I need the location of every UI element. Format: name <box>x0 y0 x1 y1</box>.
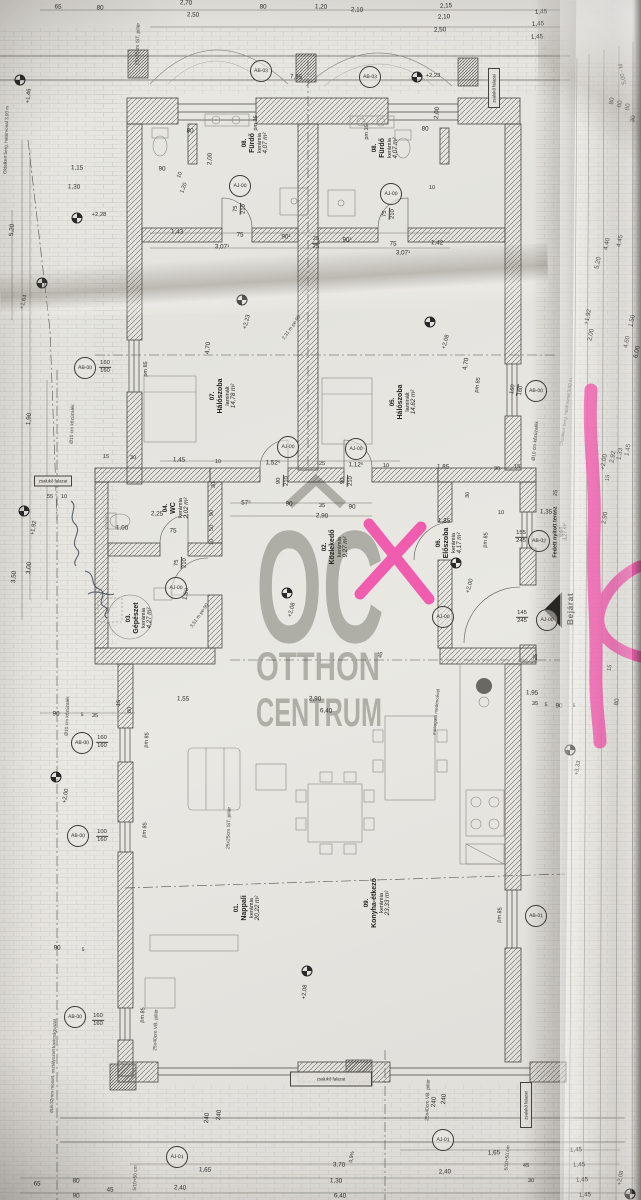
dimension-label: 80 <box>186 127 193 134</box>
dimension-label: 10 <box>383 463 389 469</box>
size-stack: 75210 <box>233 203 248 215</box>
opening-tag: AB-00 <box>64 1006 87 1029</box>
size-stack: 160160 <box>99 360 111 374</box>
level-value: +2,00 <box>62 788 70 803</box>
level-mark-icon <box>72 213 83 224</box>
room-r-num: 08. <box>372 138 379 159</box>
note-label: 5/10+50 cm <box>504 1145 511 1171</box>
dimension-label: 3,70 <box>333 1161 346 1168</box>
dimension-label: 30 <box>494 466 500 472</box>
dimension-label: 10 <box>176 171 184 179</box>
dimension-label: 75 <box>169 527 176 534</box>
dimension-label: 2,00 <box>433 107 441 120</box>
room-r-area: 4,27 m² <box>147 602 154 633</box>
size-stack: 75210 <box>174 557 189 569</box>
dimension-label: pm 85 <box>496 907 503 923</box>
dimension-label: 0,5% <box>348 1151 356 1163</box>
level-value: +2,08 <box>287 602 297 618</box>
room-r-area: 2,02 m² <box>184 498 191 519</box>
room-r-num: 07. <box>210 378 217 413</box>
dimension-label: 15 <box>116 700 123 707</box>
level-value: +1,92 <box>30 520 38 535</box>
note-label: 2,31 m pe-90 <box>282 315 302 341</box>
room-r-num: 08. <box>242 133 249 154</box>
dimension-label: 90 <box>72 1192 79 1199</box>
room-r-num: 02. <box>322 529 329 564</box>
size-stack: 160160 <box>96 735 108 749</box>
dimension-label: 10 <box>215 459 221 465</box>
dimension-label: 2,50 <box>187 11 200 18</box>
note-label: Oldalkert berg. határvonal 3,00 m <box>2 106 9 174</box>
dimension-label: 1,00 <box>116 524 129 531</box>
dimension-label: 90 <box>158 165 165 172</box>
level-value: +1,46 <box>25 88 32 103</box>
level-value: +2,08 <box>301 984 308 999</box>
level-mark-icon <box>451 558 462 569</box>
paper-crease-horizontal <box>0 244 549 318</box>
dimension-label: 90 <box>348 503 355 510</box>
dimension-label: 2,40 <box>439 1168 452 1175</box>
dimension-label: 90 <box>53 944 60 951</box>
room-r-area: 14,78 m² <box>231 378 238 413</box>
room-r-name: Előszoba <box>443 528 451 559</box>
dimension-label: 4,70 <box>461 357 470 370</box>
paper-fold-corner <box>538 0 641 200</box>
dimension-label: 90¹ <box>281 233 290 240</box>
floorplan-photo: OC OTTHON CENTRUM 2,7065802,50801,202,10… <box>0 0 641 1200</box>
room-r-num: 03. <box>126 602 133 633</box>
dimension-label: 5,20 <box>8 224 16 237</box>
note-label: 5/10+50 cm <box>133 1165 139 1190</box>
dimension-label: 45 <box>378 651 385 658</box>
dimension-label: 240 <box>215 1109 223 1120</box>
dimension-label: 1,90 <box>25 413 33 426</box>
dimension-label: 1,65 <box>199 1166 212 1173</box>
dimension-label: 2,40 <box>174 1184 187 1191</box>
size-stack: 90210 <box>340 475 355 487</box>
room-r-num: 01. <box>234 895 241 920</box>
opening-tag: AB-03 <box>359 66 382 89</box>
dimension-label: 2,50 <box>434 26 447 34</box>
dimension-label: 6,40 <box>334 1192 347 1199</box>
room-r-name: Fürdő <box>249 133 257 154</box>
note-label: 3,51 m pe-90 <box>190 603 210 629</box>
level-mark-icon <box>425 317 436 328</box>
dimension-label: 1,12⁵ <box>348 461 363 469</box>
room-r-name: Közlekedő <box>329 529 337 564</box>
note-label: d16-32mm mosott, osztályozott kavicságya… <box>49 1019 57 1113</box>
opening-tag: AB-00 <box>71 732 94 755</box>
dimension-label: 15 <box>514 464 520 470</box>
dimension-label: 3,50 <box>10 571 18 584</box>
room-label: 08.Fürdőkerámia4,07 m² <box>372 138 400 159</box>
dimension-label: 25 <box>319 461 325 467</box>
room-label: 05.Hálószobalaminált14,62 m² <box>390 384 418 419</box>
dimension-label: 10 <box>429 185 435 191</box>
note-label: 25x25cm IST. pillér <box>134 23 141 65</box>
room-r-area: 23,33 m² <box>385 878 392 928</box>
opening-tag: AB-00 <box>67 825 90 848</box>
opening-tag: AJ-00 <box>277 436 300 459</box>
room-r-num: 06. <box>436 528 443 559</box>
dimension-label: 90 <box>285 500 292 507</box>
dimension-label: 35 <box>319 503 325 509</box>
size-stack: 90210 <box>276 475 291 487</box>
dimension-label: pm 85 <box>143 732 150 748</box>
room-label: 03.Gépészetkerámia4,27 m² <box>126 602 154 633</box>
dimension-label: 7,85 <box>290 73 303 80</box>
level-mark-icon <box>412 72 423 83</box>
dimension-label: 80 <box>127 707 134 714</box>
opening-tag: AJ-00 <box>380 183 403 206</box>
dimension-label: 55 <box>47 494 53 500</box>
dimension-label: 1,30 <box>68 183 81 190</box>
dimension-label: 10 <box>209 539 216 546</box>
opening-tag: AB-03 <box>250 60 273 83</box>
level-value: +2,23 <box>242 314 252 330</box>
dimension-label: 90¹ <box>342 236 351 243</box>
dimension-label: 4,70 <box>204 342 212 355</box>
dimension-label: 10 <box>498 510 504 516</box>
level-mark-icon <box>282 588 293 599</box>
note-label: Ø10 cm kőzúzalék <box>70 404 76 444</box>
dimension-label: 1,30 <box>330 1177 343 1184</box>
note-label: 25x25cm IST. pillér <box>225 807 232 849</box>
level-mark-icon <box>302 966 313 977</box>
room-r-area: 9,27 m² <box>343 529 350 564</box>
dimension-label: 75 <box>236 231 243 238</box>
room-r-name: WC <box>170 498 178 519</box>
room-label: 01.Nappalikerámia20,22 m² <box>234 895 262 920</box>
dimension-label: 1,15 <box>71 164 84 171</box>
dimension-label: 2,70 <box>180 0 193 7</box>
dimension-label: 30 <box>465 492 472 499</box>
wall-type-box: zsalukő falazat <box>34 476 72 487</box>
room-r-area: 14,62 m² <box>411 384 418 419</box>
level-value: +2,00 <box>465 578 475 594</box>
dimension-label: 45 <box>106 1186 113 1193</box>
room-r-area: 20,22 m² <box>255 895 262 920</box>
wall-type-label: zsalukő falazat <box>39 479 67 484</box>
dimension-label: 5 <box>81 712 84 718</box>
dimension-label: pm 85 <box>143 361 150 376</box>
level-mark-icon <box>51 772 62 783</box>
dimension-label: 2,90 <box>316 512 329 519</box>
dimension-label: 5 <box>82 947 85 953</box>
dimension-label: 240 <box>430 1096 438 1107</box>
dimension-label: 30 <box>130 455 136 461</box>
opening-tag: AJ-00 <box>345 438 368 461</box>
dimension-label: 240 <box>440 1093 448 1104</box>
room-r-name: Fürdő <box>379 138 387 159</box>
dimension-label: pm 85 <box>474 377 482 393</box>
room-r-area: 4,07 m² <box>263 133 270 154</box>
room-label: 07.Hálószobalaminált14,78 m² <box>210 378 238 413</box>
room-r-area: 4,07 m² <box>393 138 400 159</box>
dimension-label: 1,85 <box>438 517 451 524</box>
dimension-label: 1,85 <box>437 463 450 470</box>
dimension-label: 80 <box>96 4 103 11</box>
level-value: +2,28 <box>92 212 107 218</box>
opening-tag: AB-00 <box>74 357 97 380</box>
wall-type-label: zsalukő falazat <box>492 74 497 102</box>
level-value: +2,08 <box>441 334 451 350</box>
opening-tag: AJ-01 <box>432 1129 455 1152</box>
dimension-label: 1,20 <box>179 182 188 194</box>
dimension-label: pm 35 <box>253 115 260 130</box>
dimension-label: 65 <box>33 1180 40 1187</box>
dimension-label: 2,10 <box>351 6 364 13</box>
dimension-label: 35 <box>92 713 98 719</box>
size-stack: 160160 <box>509 383 525 397</box>
level-value: +2,23 <box>426 73 441 79</box>
room-r-name: Nappali <box>241 895 249 920</box>
dimension-label: 2,10 <box>438 13 451 21</box>
room-r-name: Gépészet <box>133 602 141 633</box>
dimension-label: 1,52⁵ <box>265 459 280 467</box>
dimension-label: 30 <box>211 482 218 489</box>
room-r-area: 4,17 m² <box>457 528 464 559</box>
dimension-label: 15 <box>103 454 109 460</box>
dimension-label: 50 <box>209 525 216 532</box>
room-label: 02.Közlekedőkerámia9,27 m² <box>322 529 350 564</box>
dimension-label: 90 <box>209 510 216 517</box>
note-label: Ø10 cm kőzúzalék <box>65 696 71 736</box>
dimension-label: 57⁵ <box>241 499 251 506</box>
size-stack: 145245 <box>516 610 528 624</box>
dimension-label: 1,65 <box>488 1149 501 1156</box>
dimension-label: 80 <box>421 125 428 132</box>
dimension-label: pm 85 <box>141 822 148 838</box>
dimension-label: 10 <box>61 494 67 500</box>
dimension-label: 1,55 <box>177 695 190 702</box>
dimension-label: pm 35 <box>364 124 371 139</box>
dimension-label: pm 85 <box>139 1007 146 1023</box>
dimension-label: 1,43 <box>171 228 184 235</box>
dimension-label: 3,07¹ <box>215 243 230 250</box>
room-r-name: Hálószoba <box>397 384 405 419</box>
room-r-num: 09. <box>364 878 371 928</box>
dimension-label: 2,00 <box>206 153 213 166</box>
note-label: 25x40cm VB. pillér <box>152 1009 159 1051</box>
wall-type-label: zsalukő falazat <box>317 1077 345 1082</box>
opening-tag: AJ-01 <box>166 1146 189 1169</box>
dimension-label: 65 <box>54 3 61 10</box>
room-label: 06.Előszobakerámia4,17 m² <box>436 528 464 559</box>
opening-tag: AJ-00 <box>229 175 252 198</box>
room-label: 04.WCkerámia2,02 m² <box>163 498 191 519</box>
dimension-label: pm 85 <box>482 532 489 548</box>
wall-type-box: zsalukő falazat <box>488 68 500 108</box>
room-r-name: Hálószoba <box>217 378 225 413</box>
note-label: mosogató medencével <box>431 689 440 735</box>
size-stack: 100160 <box>96 829 108 843</box>
wall-type-box: zsalukő falazat <box>290 1072 372 1087</box>
room-r-num: 04. <box>163 498 170 519</box>
room-label: 08.Fürdőkerámia4,07 m² <box>242 133 270 154</box>
dimension-label: 90 <box>52 710 59 717</box>
paper-edge <box>633 0 641 1200</box>
size-stack: 155245 <box>515 530 527 544</box>
note-label: 25x40cm VB. pillér <box>424 1079 431 1121</box>
dimension-label: 240 <box>203 1112 211 1123</box>
room-r-name: Konyha-étkező <box>371 878 379 928</box>
dimension-label: 2,90 <box>309 695 322 702</box>
room-r-num: 05. <box>390 384 397 419</box>
dimension-label: 1,20 <box>315 3 328 10</box>
dimension-label: 80 <box>72 1177 79 1184</box>
level-mark-icon <box>19 506 30 517</box>
dimension-label: 1,45 <box>173 456 186 463</box>
dimension-label: 3,00 <box>25 562 33 575</box>
room-label: 09.Konyha-étkezőkerámia23,33 m² <box>364 878 392 928</box>
dimension-label: 6,40 <box>320 707 333 714</box>
level-mark-icon <box>15 75 26 86</box>
size-stack: 160160 <box>92 1013 104 1027</box>
opening-tag: AJ-00 <box>432 606 455 629</box>
dimension-label: 2,15 <box>440 2 453 10</box>
size-stack: 75210 <box>382 208 397 220</box>
dimension-label: 80 <box>259 3 266 10</box>
